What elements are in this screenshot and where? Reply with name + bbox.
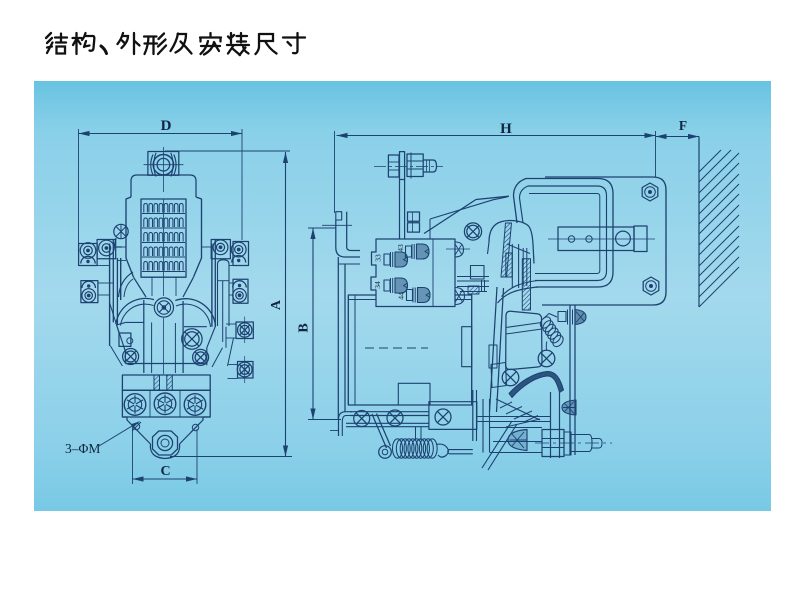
svg-text:34: 34 bbox=[373, 281, 382, 289]
svg-text:H: H bbox=[500, 121, 512, 137]
svg-text:B: B bbox=[297, 323, 312, 332]
svg-text:43: 43 bbox=[396, 244, 405, 252]
svg-text:3–ΦM: 3–ΦM bbox=[65, 441, 100, 456]
svg-text:D: D bbox=[161, 118, 172, 134]
svg-text:33: 33 bbox=[374, 254, 383, 262]
svg-text:C: C bbox=[160, 464, 170, 479]
svg-text:A: A bbox=[269, 299, 284, 310]
svg-text:44: 44 bbox=[397, 292, 406, 300]
svg-text:F: F bbox=[679, 118, 687, 133]
